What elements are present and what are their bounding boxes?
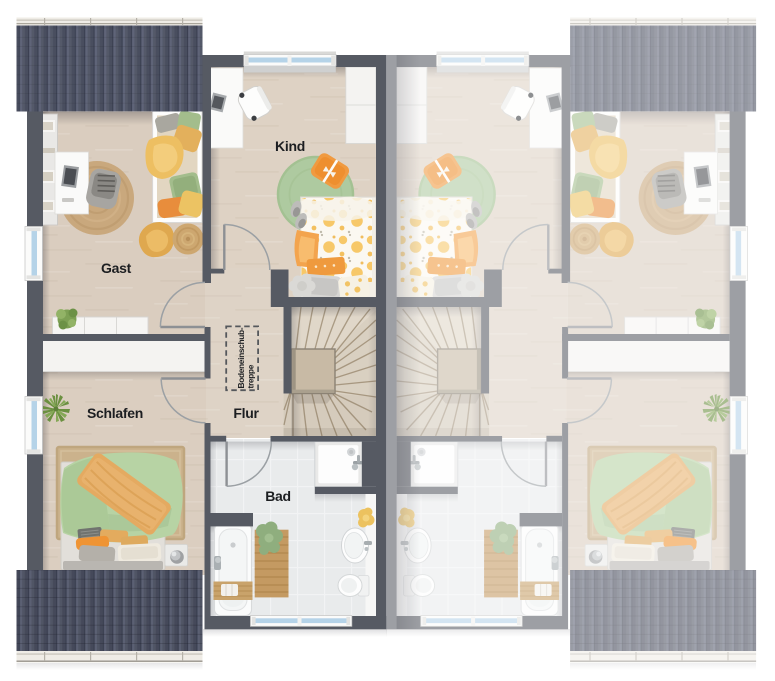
svg-text:Schlafen: Schlafen — [87, 405, 143, 421]
svg-text:Flur: Flur — [233, 405, 259, 421]
svg-text:treppe: treppe — [246, 364, 256, 388]
svg-text:Bad: Bad — [265, 488, 291, 504]
svg-text:Gast: Gast — [101, 260, 132, 276]
svg-text:Kind: Kind — [275, 138, 305, 154]
svg-text:Bodeneinschub-: Bodeneinschub- — [236, 327, 246, 388]
